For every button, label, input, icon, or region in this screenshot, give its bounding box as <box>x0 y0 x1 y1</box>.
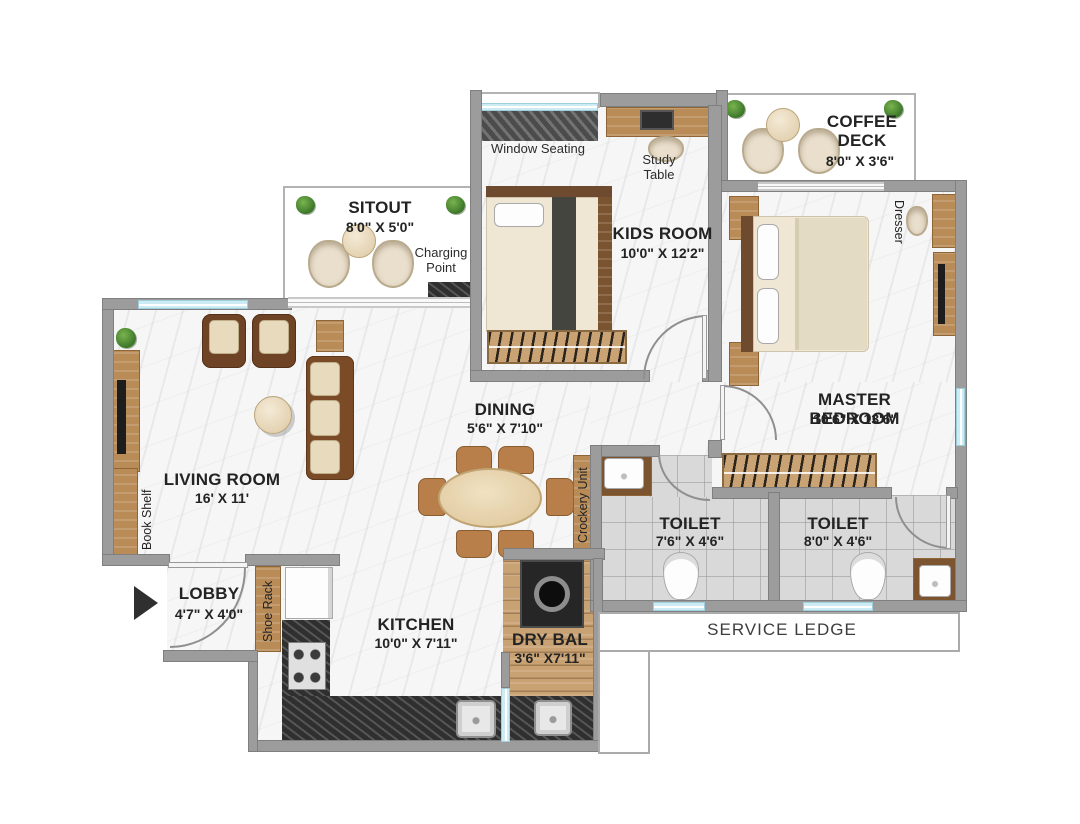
room-dims-toilet1: 7'6" X 4'6" <box>648 534 732 550</box>
book-shelf <box>112 468 138 558</box>
dry-balcony-sink <box>534 700 572 736</box>
master-top-window <box>758 182 884 191</box>
wall <box>163 650 258 662</box>
living-window <box>138 300 248 309</box>
wall <box>590 600 967 612</box>
armchair-cushion <box>209 320 239 354</box>
room-label-coffee-deck: COFFEE DECK <box>818 112 906 150</box>
laptop <box>640 110 674 130</box>
toilet-wc <box>850 552 886 600</box>
room-label-sitout: SITOUT <box>296 198 464 217</box>
toilet-wc <box>663 552 699 600</box>
coffee-deck-table <box>766 108 800 142</box>
annotation-study-table: Study Table <box>628 153 690 183</box>
sofa-cushion <box>310 362 340 396</box>
wall <box>102 298 114 566</box>
wall <box>248 650 258 752</box>
annotation-charging-point: Charging Point <box>410 246 472 276</box>
kids-wardrobe <box>487 330 627 364</box>
wall <box>470 370 650 382</box>
annotation-book-shelf: Book Shelf <box>140 480 154 560</box>
plant-icon <box>116 328 136 348</box>
entry-door-leaf <box>168 562 248 568</box>
room-dims-coffee-deck: 8'0" X 3'6" <box>808 154 912 170</box>
dining-chair <box>456 530 492 558</box>
room-label-kids: KIDS ROOM <box>590 224 735 243</box>
floor-plan: SITOUT 8'0" X 5'0" Window Seating Study … <box>0 0 1080 824</box>
armchair-cushion <box>259 320 289 354</box>
gas-stove <box>288 642 326 690</box>
room-label-toilet2: TOILET <box>796 514 880 533</box>
room-label-toilet1: TOILET <box>648 514 732 533</box>
room-dims-master: 10'6" X 13'6" <box>785 412 925 428</box>
annotation-window-seating: Window Seating <box>486 142 590 157</box>
sitout-sliding-window <box>288 297 470 308</box>
dining-chair <box>546 478 574 516</box>
master-side-window <box>956 388 965 446</box>
kids-bed-blanket <box>552 197 576 332</box>
room-label-kitchen: KITCHEN <box>370 615 462 634</box>
dresser-stool <box>906 206 928 236</box>
wall <box>245 554 340 566</box>
tv-screen <box>117 380 126 454</box>
room-dims-toilet2: 8'0" X 4'6" <box>796 534 880 550</box>
wall <box>708 105 722 382</box>
master-bed-blanket <box>795 218 867 350</box>
wall <box>102 554 170 566</box>
kids-room-door-leaf <box>702 315 707 379</box>
kids-window <box>479 103 598 111</box>
wall <box>712 487 892 499</box>
washbasin <box>919 565 951 597</box>
dining-table <box>438 468 542 528</box>
kids-bed-pillow <box>494 203 544 227</box>
annotation-dresser: Dresser <box>892 196 906 248</box>
kids-bed-headboard <box>486 186 612 197</box>
entry-arrow-icon <box>134 586 158 620</box>
annotation-shoe-rack: Shoe Rack <box>261 578 275 644</box>
annotation-service-ledge: SERVICE LEDGE <box>662 620 902 640</box>
room-dims-dry-balcony: 3'6" X7'11" <box>506 651 594 667</box>
room-dims-lobby: 4'7" X 4'0" <box>166 607 252 623</box>
wall <box>503 548 605 560</box>
toilet2-window <box>803 602 873 611</box>
kitchen-sink <box>456 700 496 738</box>
washing-machine-drum <box>534 576 570 612</box>
room-dims-kitchen: 10'0" X 7'11" <box>360 636 472 652</box>
dresser <box>932 194 957 248</box>
sitout-chair <box>372 240 414 288</box>
master-tv-unit <box>933 252 957 336</box>
side-table <box>316 320 344 352</box>
refrigerator <box>285 567 333 619</box>
room-label-living: LIVING ROOM <box>158 470 286 489</box>
kids-bed-rail <box>598 197 612 332</box>
wall <box>248 740 603 752</box>
room-dims-living: 16' X 11' <box>158 491 286 507</box>
master-bed-pillow <box>757 224 779 280</box>
dry-balcony-glass-partition <box>501 688 510 742</box>
room-label-dry-balcony: DRY BAL <box>510 630 590 649</box>
room-label-lobby: LOBBY <box>170 584 248 603</box>
sofa-cushion <box>310 400 340 436</box>
annotation-crockery-unit: Crockery Unit <box>576 462 590 548</box>
master-bed-pillow <box>757 288 779 344</box>
master-door-leaf <box>720 385 725 440</box>
plant-icon <box>726 100 745 118</box>
window-seat-bench <box>480 111 598 141</box>
sofa-cushion <box>310 440 340 474</box>
toilet2-door-leaf <box>946 495 951 549</box>
room-dims-dining: 5'6" X 7'10" <box>450 421 560 437</box>
toilet1-window <box>653 602 705 611</box>
wall <box>768 492 780 607</box>
room-dims-sitout: 8'0" X 5'0" <box>296 220 464 236</box>
master-bed-headboard <box>741 216 753 352</box>
room-dims-kids: 10'0" X 12'2" <box>590 246 735 262</box>
wall <box>708 440 722 458</box>
outside-area-bottom-left <box>94 662 250 824</box>
washbasin <box>604 458 644 489</box>
room-label-dining: DINING <box>455 400 555 419</box>
coffee-table <box>254 396 292 434</box>
master-tv-screen <box>938 264 945 324</box>
wall <box>470 90 482 382</box>
